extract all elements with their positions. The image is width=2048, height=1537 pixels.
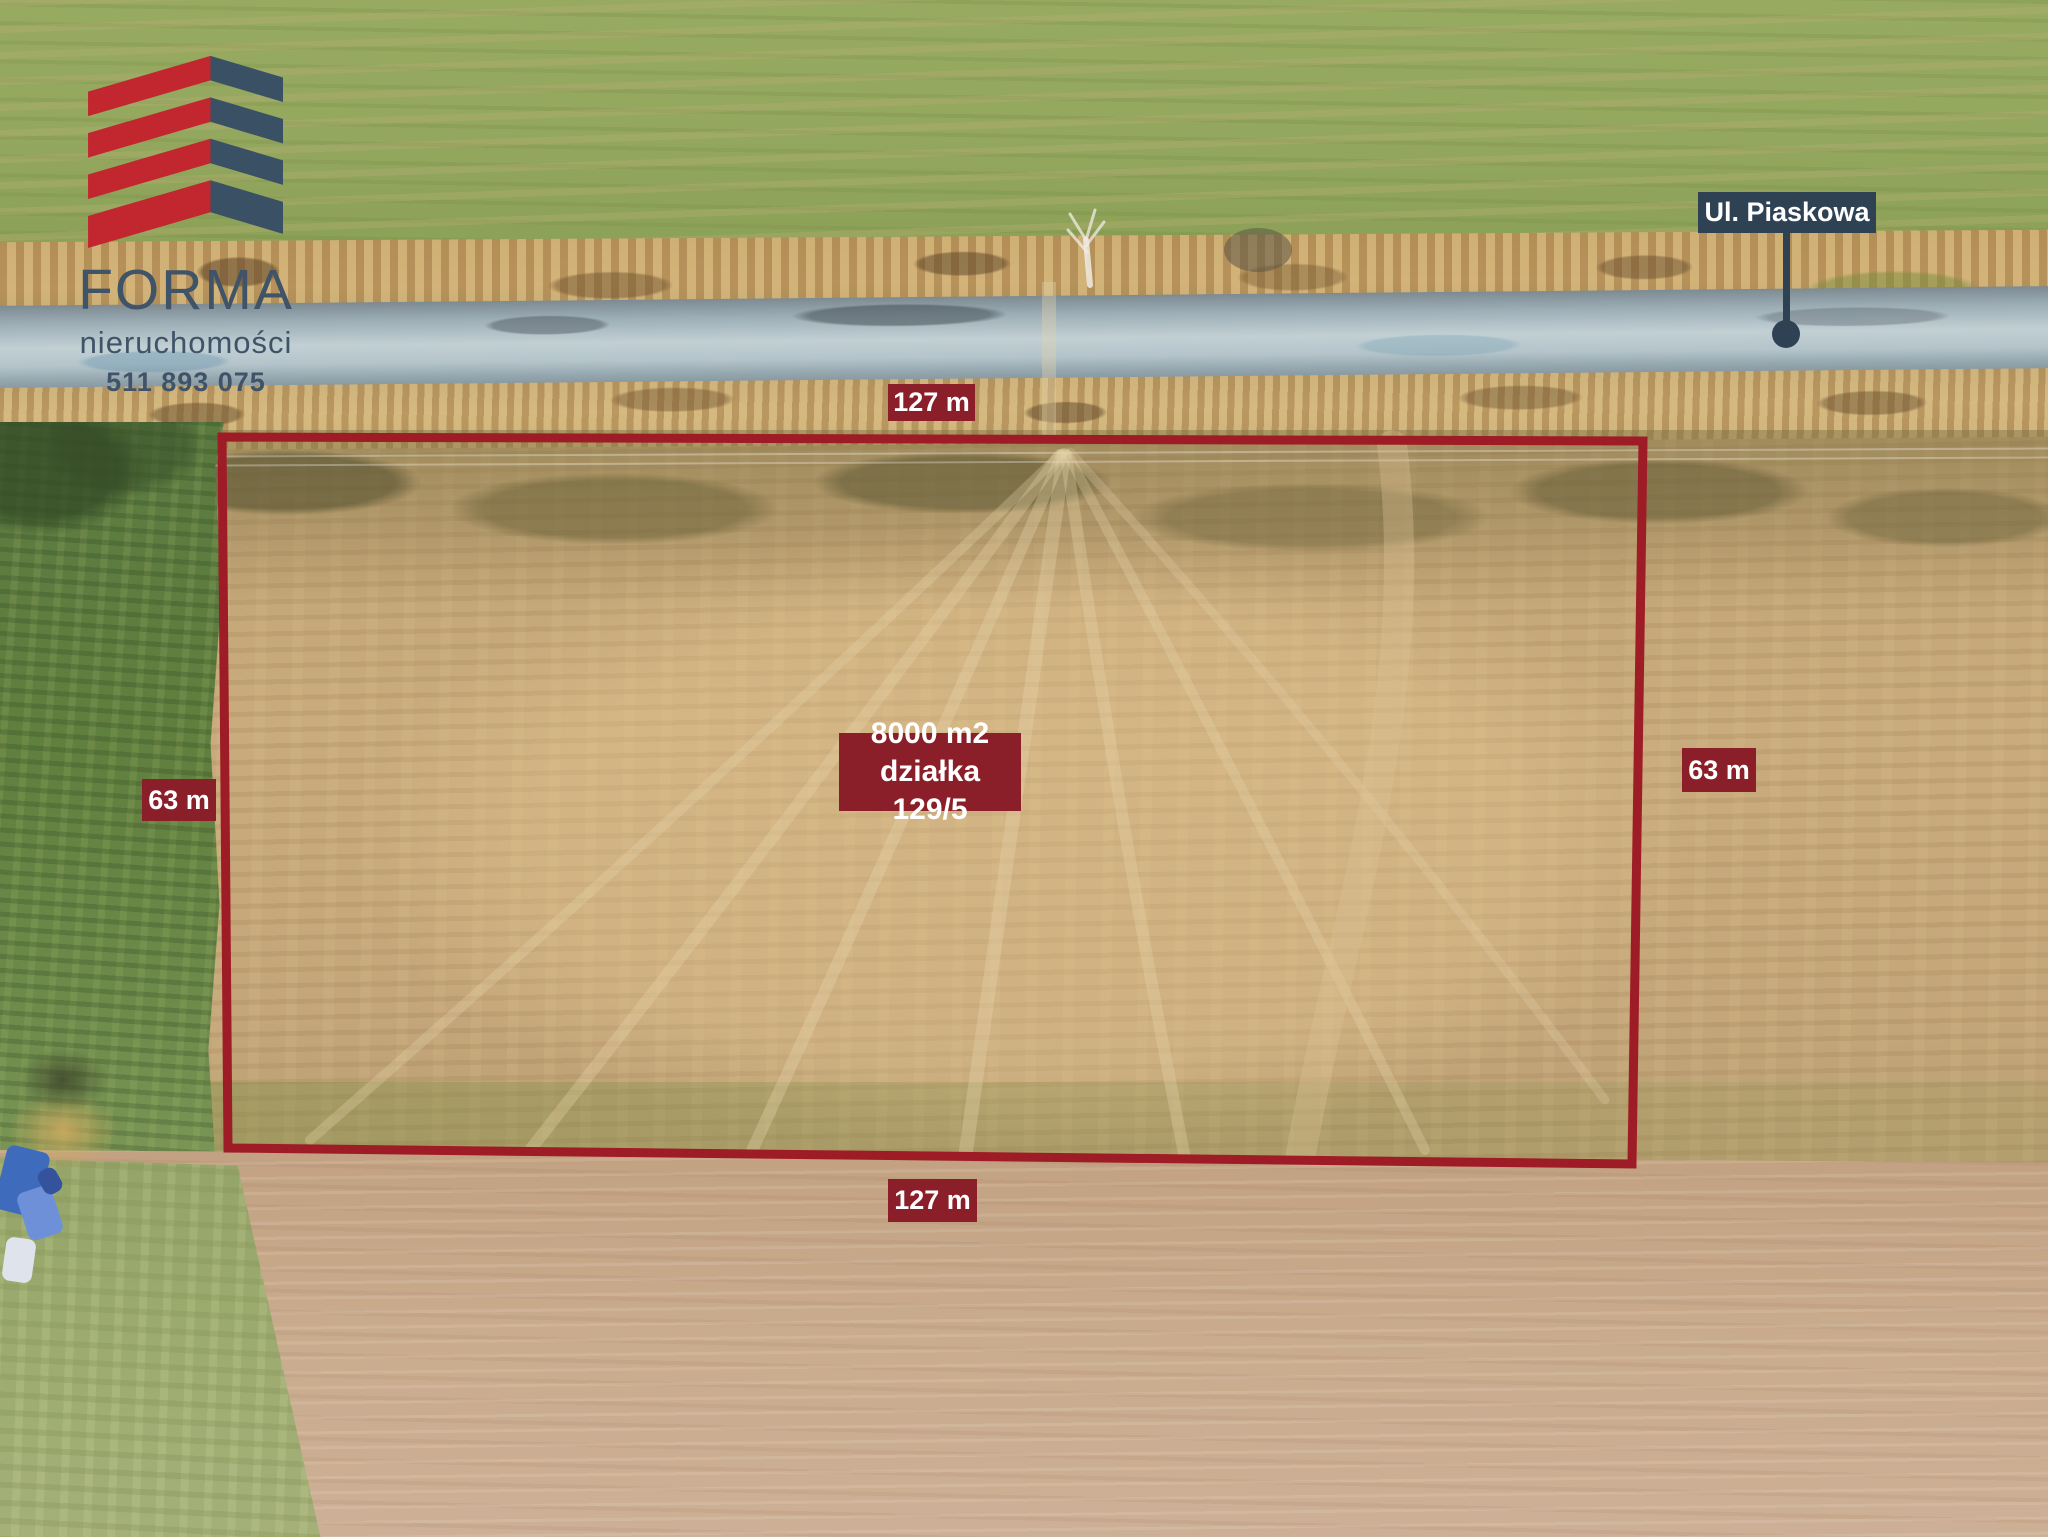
agency-logo: FORMA nieruchomości 511 893 075 bbox=[78, 54, 294, 398]
dim-label-right: 63 m bbox=[1682, 748, 1756, 792]
dim-label-top: 127 m bbox=[888, 384, 975, 421]
brand-tagline: nieruchomości bbox=[78, 325, 294, 361]
brand-name: FORMA bbox=[78, 257, 294, 323]
plot-area-text: 8000 m2 bbox=[871, 715, 989, 753]
plot-info-label: 8000 m2 działka 129/5 bbox=[839, 733, 1021, 811]
dim-label-bottom: 127 m bbox=[888, 1179, 977, 1222]
dark-bush bbox=[18, 1048, 108, 1112]
plot-parcel-text: działka 129/5 bbox=[839, 753, 1021, 829]
white-tarp bbox=[1, 1236, 37, 1284]
aerial-plot-photo: Ul. Piaskowa 127 m 127 m 63 m 63 m 8000 … bbox=[0, 0, 2048, 1537]
brand-phone: 511 893 075 bbox=[78, 367, 294, 398]
building-icon bbox=[80, 54, 292, 248]
street-pointer-line bbox=[1783, 232, 1790, 328]
field-access-path bbox=[1042, 282, 1056, 444]
dim-label-left: 63 m bbox=[142, 779, 216, 821]
street-pointer-dot bbox=[1772, 320, 1800, 348]
street-label: Ul. Piaskowa bbox=[1698, 192, 1876, 233]
